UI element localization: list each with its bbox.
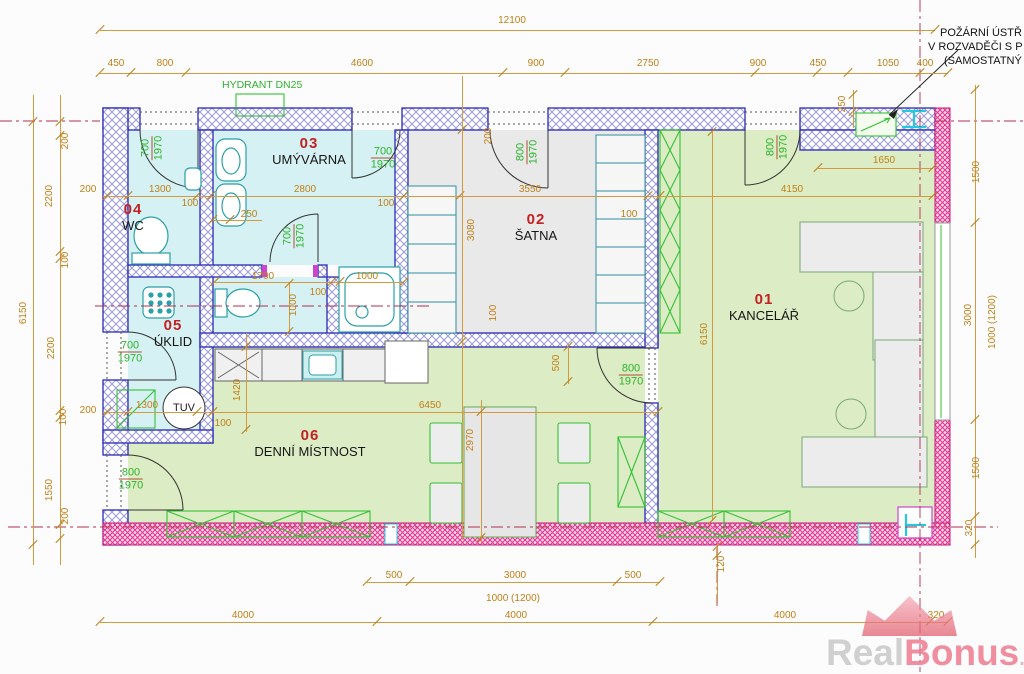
watermark-real: Real [826, 632, 904, 673]
room-number: 05 [154, 318, 192, 334]
dimension-label: 2200 [45, 185, 55, 207]
dimension-line [103, 196, 933, 197]
floor-plan-page: 1210045080046009002750900450105040025061… [0, 0, 1024, 674]
dimension-label: 6150 [19, 302, 29, 324]
dimension-label: 1050 [877, 59, 899, 69]
dimension-line [33, 95, 34, 565]
door-size-label: 8001970 [119, 467, 143, 492]
dimension-label: 1500 [972, 457, 982, 479]
dimension-label: 100 [59, 409, 69, 426]
dimension-label: 250 [241, 210, 258, 220]
door-height: 1970 [295, 224, 307, 248]
dimension-label: 450 [810, 59, 827, 69]
dimension-line [481, 400, 482, 543]
dimension-label: 100 [61, 252, 71, 269]
dimension-label: 4150 [781, 185, 803, 195]
desk [875, 340, 923, 437]
dimension-label: 450 [108, 59, 125, 69]
door-height: 1970 [528, 140, 540, 164]
dimension-label: 250 [838, 96, 848, 113]
dimension-label: 500 [386, 571, 403, 581]
dimension-label: 4000 [774, 611, 796, 621]
dimension-label: 100 [215, 419, 232, 429]
door-size-label: 7001970 [282, 224, 307, 248]
chair-icon [558, 423, 590, 463]
room-label-04: 04WC [122, 202, 144, 233]
room-name: DENNÍ MÍSTNOST [254, 444, 365, 459]
tuv-label: TUV [173, 402, 195, 414]
dimension-label: 3000 [504, 571, 526, 581]
dimension-label: 1420 [233, 379, 243, 401]
dimension-line [462, 76, 463, 540]
dimension-label: 6150 [700, 323, 710, 345]
door-height: 1970 [118, 353, 142, 365]
corner-basin-icon [185, 168, 201, 190]
door-width: 700 [282, 224, 295, 248]
dimension-label: 2750 [637, 59, 659, 69]
dimension-label: 1650 [873, 156, 895, 166]
dimension-label: 1000 [289, 294, 299, 316]
dimension-label: 1000 [356, 272, 378, 282]
dimension-label: 2200 [47, 337, 57, 359]
dimension-label: 1000 (1200) [486, 594, 540, 604]
door-width: 800 [765, 135, 778, 159]
door-size-label: 8001970 [765, 135, 790, 159]
dimension-line [818, 168, 933, 169]
room-name: ŠATNA [515, 228, 557, 243]
dimension-label: 900 [528, 59, 545, 69]
fire-note-line2: V ROZVADĚČI S P [928, 41, 1023, 53]
fridge-icon [385, 341, 428, 383]
desk [802, 437, 927, 487]
dimension-label: 1300 [149, 185, 171, 195]
dimension-label: 1300 [136, 401, 158, 411]
dimension-label: 12100 [498, 16, 526, 26]
room-name: ÚKLID [154, 334, 192, 349]
door-height: 1970 [619, 376, 643, 388]
dimension-line [100, 30, 935, 31]
dimension-label: 100 [378, 199, 395, 209]
room-number: 02 [515, 212, 557, 228]
dimension-label: 100 [489, 305, 499, 322]
dimension-label: 400 [917, 59, 934, 69]
washbasin-bowl [222, 148, 240, 174]
door-height: 1970 [778, 135, 790, 159]
door-width: 700 [140, 136, 153, 160]
chair-icon [430, 483, 462, 523]
dimension-label: 900 [750, 59, 767, 69]
window-right [935, 223, 950, 420]
dimension-line [60, 95, 61, 565]
room-number: 04 [122, 202, 144, 218]
dimension-line [100, 73, 948, 74]
dimension-label: 500 [552, 355, 562, 372]
dimension-line [246, 333, 247, 432]
hydrant-label: HYDRANT DN25 [222, 79, 302, 91]
room-number: 06 [254, 428, 365, 444]
room-label-02: 02ŠATNA [515, 212, 557, 243]
dimension-label: 1500 [972, 161, 982, 183]
dimension-label: 100 [310, 288, 327, 298]
dimension-label: 200 [484, 128, 494, 145]
table [464, 407, 536, 537]
dimension-label: 200 [61, 133, 71, 150]
dimension-label: 500 [625, 571, 642, 581]
room-label-05: 05ÚKLID [154, 318, 192, 349]
door-size-label: 8001970 [619, 363, 643, 388]
dimension-label: 200 [80, 406, 97, 416]
floor-drain-holes [148, 292, 171, 313]
door-height: 1970 [153, 136, 165, 160]
dimension-line [215, 282, 404, 283]
room-number: 03 [272, 136, 346, 152]
chair-icon [558, 483, 590, 523]
door-height: 1970 [119, 480, 143, 492]
dimension-label: 200 [80, 185, 97, 195]
watermark: RealBonus.cz [826, 634, 1024, 674]
door-width: 800 [119, 467, 143, 480]
door-size-label: 7001970 [371, 146, 395, 171]
fire-note-line3: (SAMOSTATNÝ [944, 55, 1022, 67]
fire-note-line1: POŽÁRNÍ ÚSTŘ [940, 27, 1022, 39]
dimension-label: 1700 [252, 272, 274, 282]
door-size-label: 7001970 [140, 136, 165, 160]
corner-detail [898, 507, 932, 538]
dimension-line [100, 622, 948, 623]
desk [800, 222, 923, 272]
dimension-label: 800 [157, 59, 174, 69]
door-size-label: 8001970 [515, 140, 540, 164]
dimension-label: 3080 [467, 219, 477, 241]
dimension-label: 3550 [519, 185, 541, 195]
dimension-label: 4600 [351, 59, 373, 69]
dimension-label: 320 [965, 520, 975, 537]
room-name: WC [122, 218, 144, 233]
room-label-01: 01KANCELÁŘ [729, 292, 799, 323]
room-name: KANCELÁŘ [729, 308, 799, 323]
dimension-line [213, 220, 262, 221]
dimension-label: 4000 [505, 611, 527, 621]
dimension-label: 120 [717, 556, 727, 573]
dimension-label: 3000 [964, 304, 974, 326]
dimension-label: 200 [61, 508, 71, 525]
dimension-label: 2800 [294, 185, 316, 195]
door-width: 700 [371, 146, 395, 159]
door-height: 1970 [371, 159, 395, 171]
dimension-label: 100 [621, 210, 638, 220]
door-width: 800 [515, 140, 528, 164]
door-width: 700 [118, 340, 142, 353]
door-size-label: 7001970 [118, 340, 142, 365]
dimension-label: 1000 (1200) [988, 295, 998, 349]
dimension-line [712, 132, 713, 521]
room-label-06: 06DENNÍ MÍSTNOST [254, 428, 365, 459]
toilet-tank [132, 253, 170, 264]
watermark-cz: .cz [1019, 648, 1024, 670]
dimension-line [975, 85, 976, 558]
dimension-label: 2970 [466, 429, 476, 451]
kitchen-sink-bowl [309, 355, 336, 375]
dimension-label: 6450 [419, 401, 441, 411]
toilet-tank [215, 289, 227, 317]
room-name: UMÝVÁRNA [272, 152, 346, 167]
dimension-label: 100 [182, 199, 199, 209]
dimension-label: 1550 [45, 479, 55, 501]
door-width: 800 [619, 363, 643, 376]
dimension-label: 4000 [232, 611, 254, 621]
watermark-bonus: Bonus [904, 632, 1019, 673]
room-number: 01 [729, 292, 799, 308]
toilet-icon [226, 289, 260, 317]
room-label-03: 03UMÝVÁRNA [272, 136, 346, 167]
chair-icon [430, 423, 462, 463]
